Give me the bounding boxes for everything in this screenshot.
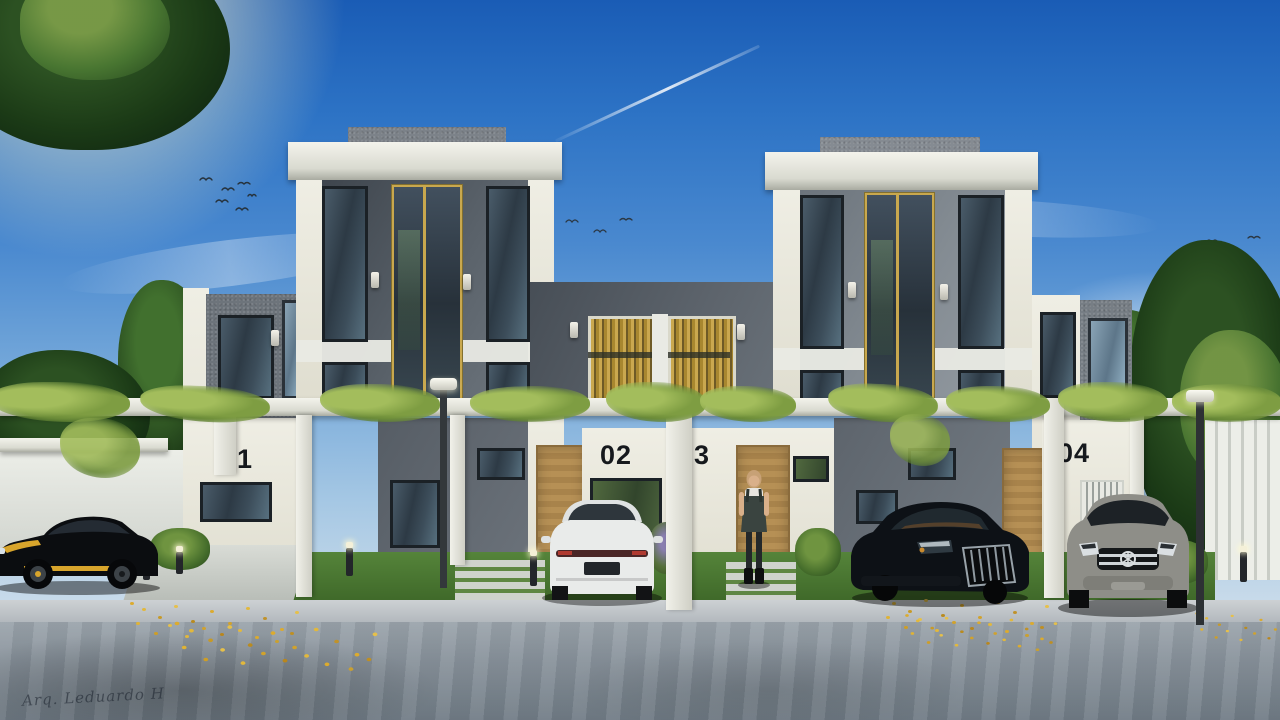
street-lamp-head [1186, 390, 1214, 402]
base-window [390, 480, 440, 548]
fallen-leaves [175, 622, 180, 626]
car-muscle-black-yellow [0, 500, 162, 596]
road-shadow [560, 640, 980, 720]
car-grey-suv-front [1053, 486, 1203, 618]
gold-window-mullion [423, 187, 426, 395]
pergola-post [450, 415, 465, 565]
street-lamp-pole [1196, 400, 1204, 625]
pergola-post [296, 415, 312, 597]
birds-flock [560, 210, 640, 244]
unit-03-number: 3 [694, 440, 710, 471]
scene: 01 02 3 04 [0, 0, 1280, 720]
left-tower-window [322, 186, 368, 342]
window-plant-reflection [871, 240, 893, 355]
left-wing-window [218, 315, 274, 399]
left-tower-cap [288, 142, 562, 180]
person-at-door [733, 468, 775, 590]
wall-light [848, 282, 856, 298]
birds-flock [192, 168, 264, 220]
wall-light [271, 330, 279, 346]
wall-light [371, 272, 379, 288]
left-tower-window [486, 186, 530, 342]
carport-post [214, 415, 236, 475]
car-dark-sedan-front [845, 490, 1035, 608]
shrub [795, 528, 841, 576]
unit-02-number: 02 [600, 440, 632, 471]
right-tower-window [958, 195, 1004, 349]
wall-light [737, 324, 745, 340]
bollard-light [176, 552, 183, 574]
bollard-light [346, 548, 353, 576]
right-tower-cap [765, 152, 1038, 190]
louver-rail [668, 352, 730, 358]
wall-light [940, 284, 948, 300]
gold-window-mullion [896, 195, 899, 401]
right-tower-window [800, 195, 844, 349]
street-lamp-pole [440, 388, 447, 588]
bollard-light [1240, 552, 1247, 582]
unit-01-window [200, 482, 272, 522]
wall-light [570, 322, 578, 338]
unit-03-window [793, 456, 829, 482]
fallen-leaves [130, 602, 134, 605]
car-white-sedan-rear [536, 494, 668, 606]
window-plant-reflection [398, 230, 420, 350]
louver-rail [588, 352, 652, 358]
pergola-post [666, 398, 692, 610]
street-lamp-head [430, 378, 457, 390]
wall-light [463, 274, 471, 290]
transom-window [477, 448, 525, 480]
vine-clump [0, 382, 130, 422]
fallen-leaves [905, 614, 909, 617]
